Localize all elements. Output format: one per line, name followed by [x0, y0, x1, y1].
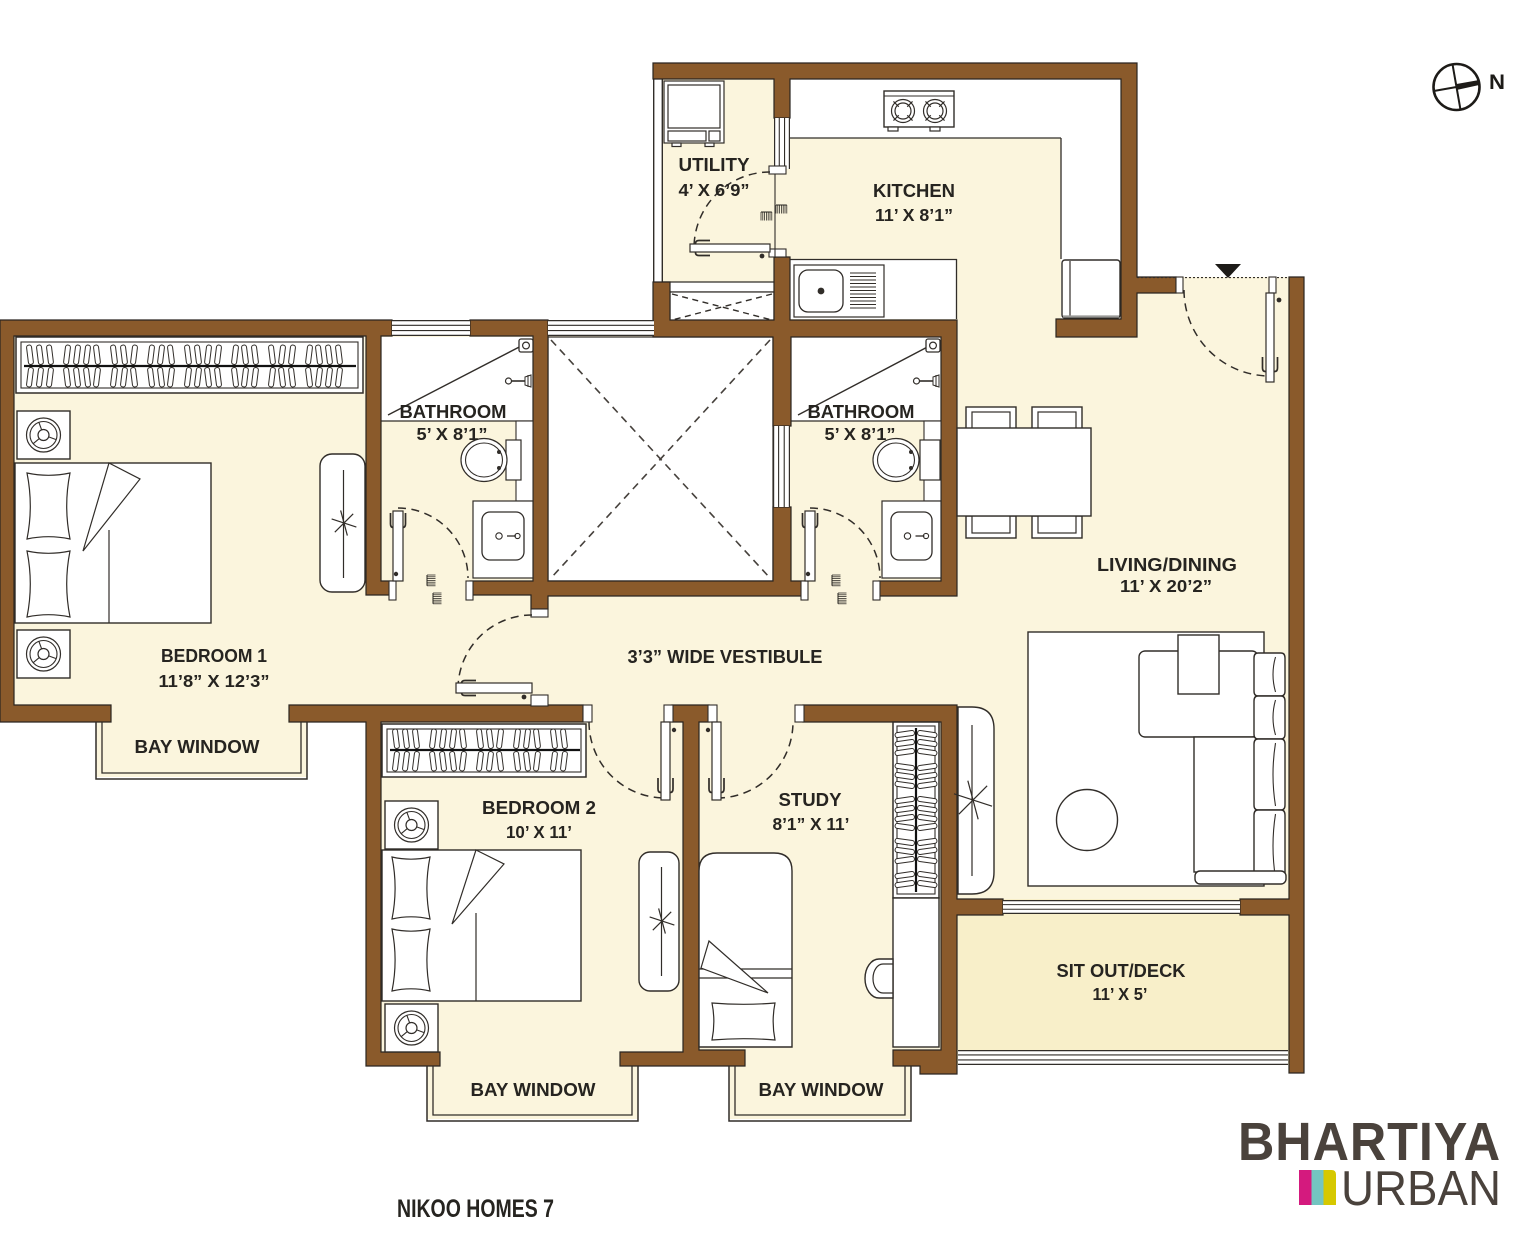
svg-text:N: N	[1489, 71, 1505, 94]
svg-text:STUDY: STUDY	[779, 790, 842, 810]
svg-text:5’ X 8’1”: 5’ X 8’1”	[825, 424, 896, 444]
svg-text:5’ X 8’1”: 5’ X 8’1”	[417, 424, 488, 444]
svg-text:BAY WINDOW: BAY WINDOW	[471, 1080, 596, 1100]
svg-text:UTILITY: UTILITY	[679, 155, 750, 175]
svg-text:SIT OUT/DECK: SIT OUT/DECK	[1057, 961, 1186, 981]
svg-text:BEDROOM 2: BEDROOM 2	[482, 798, 596, 818]
svg-text:BATHROOM: BATHROOM	[808, 402, 915, 422]
svg-text:URBAN: URBAN	[1341, 1162, 1501, 1216]
svg-text:BATHROOM: BATHROOM	[400, 402, 507, 422]
svg-text:LIVING/DINING: LIVING/DINING	[1097, 555, 1237, 575]
svg-text:NIKOO HOMES 7: NIKOO HOMES 7	[397, 1195, 554, 1223]
svg-text:BAY WINDOW: BAY WINDOW	[135, 737, 260, 757]
svg-text:11’ X 5’: 11’ X 5’	[1093, 984, 1148, 1004]
svg-text:KITCHEN: KITCHEN	[873, 181, 955, 201]
svg-text:8’1” X 11’: 8’1” X 11’	[773, 814, 850, 834]
svg-text:11’ X 8’1”: 11’ X 8’1”	[875, 205, 953, 225]
svg-text:BEDROOM 1: BEDROOM 1	[161, 646, 267, 666]
svg-text:10’ X 11’: 10’ X 11’	[506, 822, 572, 842]
svg-text:BAY WINDOW: BAY WINDOW	[759, 1080, 884, 1100]
svg-text:3’3” WIDE VESTIBULE: 3’3” WIDE VESTIBULE	[628, 647, 823, 667]
svg-text:11’8” X 12’3”: 11’8” X 12’3”	[159, 671, 270, 691]
svg-text:4’ X 6’9”: 4’ X 6’9”	[679, 180, 750, 200]
svg-text:11’ X 20’2”: 11’ X 20’2”	[1120, 576, 1212, 596]
